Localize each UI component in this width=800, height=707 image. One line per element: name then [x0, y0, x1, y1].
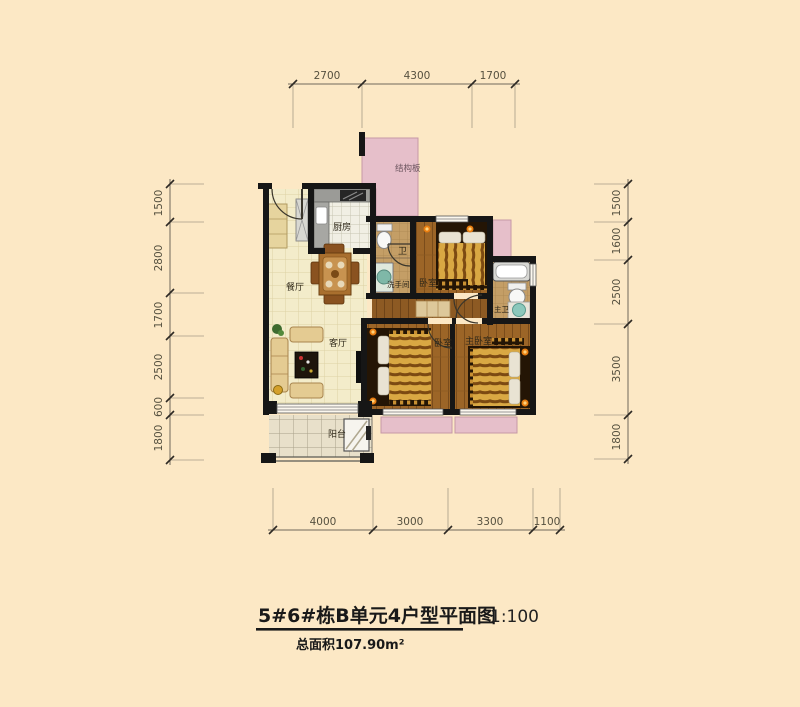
dim-top-0: 2700: [314, 70, 341, 82]
title-underline: [256, 628, 463, 631]
dining-label: 餐厅: [286, 281, 304, 293]
dim-left-2: 1700: [153, 302, 165, 329]
plan-scale: 1:100: [490, 607, 539, 627]
dim-left-3: 2500: [153, 354, 165, 381]
slab-wall-stub: [359, 132, 365, 156]
dimensions-bottom: 4000 3000 3300 1100: [268, 488, 565, 534]
stove-icon: [340, 190, 366, 201]
tv-icon: [356, 351, 361, 383]
sofa-seat: [290, 383, 323, 398]
entry-cabinet: [267, 204, 287, 248]
pillow: [439, 232, 461, 243]
dim-bottom-3: 1100: [534, 516, 561, 528]
plan-total-area: 总面积107.90m²: [296, 637, 404, 653]
slab-strip-bottom-left: [381, 417, 452, 433]
plan-title: 5#6#栋B单元4户型平面图: [258, 604, 496, 627]
corridor-cabinet: [416, 301, 450, 317]
bed-mid-bedroom: [367, 328, 431, 406]
floorplan-canvas: 结构板: [0, 0, 800, 707]
slab-strip-bottom-right: [455, 417, 517, 433]
dim-left-0: 1500: [153, 190, 165, 217]
window-master-bath: [530, 264, 536, 286]
dim-bottom-1: 3000: [397, 516, 424, 528]
dim-top-2: 1700: [480, 70, 507, 82]
living-label: 客厅: [329, 337, 347, 349]
toilet-icon: [377, 232, 391, 249]
bed-master-bedroom: [468, 338, 530, 408]
dimensions-left: 1500 2800 1700 2500 600 1800: [153, 179, 204, 465]
toilet-tank: [377, 224, 392, 231]
toilet-label: 卫: [398, 247, 407, 257]
window-master-bedroom: [460, 409, 516, 415]
coffee-table: [295, 352, 318, 378]
dim-right-0: 1500: [611, 190, 623, 217]
dimensions-top: 2700 4300 1700: [288, 70, 520, 128]
slab-strip-right: [493, 220, 511, 260]
window-bedroom-top: [436, 216, 468, 222]
pillow: [463, 232, 485, 243]
dim-left-5: 1800: [153, 425, 165, 452]
wall-left: [263, 183, 269, 415]
dimensions-right: 1500 1600 2500 3500 1800: [594, 179, 632, 464]
sofa-seat: [290, 327, 323, 342]
floorplan-drawing: 结构板: [0, 0, 800, 707]
sofa: [271, 338, 288, 392]
dim-right-4: 1800: [611, 424, 623, 451]
balcony-label: 阳台: [328, 428, 346, 440]
basin-icon: [513, 304, 526, 317]
sink-icon: [316, 207, 327, 224]
dim-right-1: 1600: [611, 228, 623, 255]
dim-bottom-2: 3300: [477, 516, 504, 528]
bedroom-top-label: 卧室: [419, 277, 437, 289]
pillow: [378, 336, 389, 364]
dim-right-3: 3500: [611, 356, 623, 383]
balcony-rail: [266, 457, 374, 461]
title-block: 5#6#栋B单元4户型平面图 1:100 总面积107.90m²: [256, 604, 539, 653]
balcony-sliding-door: [277, 404, 358, 413]
pillow: [378, 367, 389, 395]
dim-left-4: 600: [153, 397, 165, 417]
dim-right-2: 2500: [611, 279, 623, 306]
dim-bottom-0: 4000: [310, 516, 337, 528]
washroom-label: 洗手间: [387, 279, 410, 289]
wall-bedroom-mid-left: [361, 318, 367, 415]
master-bath-label: 主卫: [494, 304, 509, 314]
bed-duvet: [438, 243, 485, 285]
window-bedroom-mid: [383, 409, 443, 415]
bed-duvet: [389, 331, 431, 403]
pillow: [509, 352, 520, 377]
stool: [274, 386, 283, 395]
dim-left-1: 2800: [153, 245, 165, 272]
pillow: [509, 379, 520, 404]
kitchen-label: 厨房: [333, 221, 351, 233]
dim-top-1: 4300: [404, 70, 431, 82]
structural-slab-label: 结构板: [395, 163, 421, 174]
bedroom-mid-label: 卧室: [434, 337, 452, 349]
master-bedroom-label: 主卧室: [465, 335, 492, 347]
